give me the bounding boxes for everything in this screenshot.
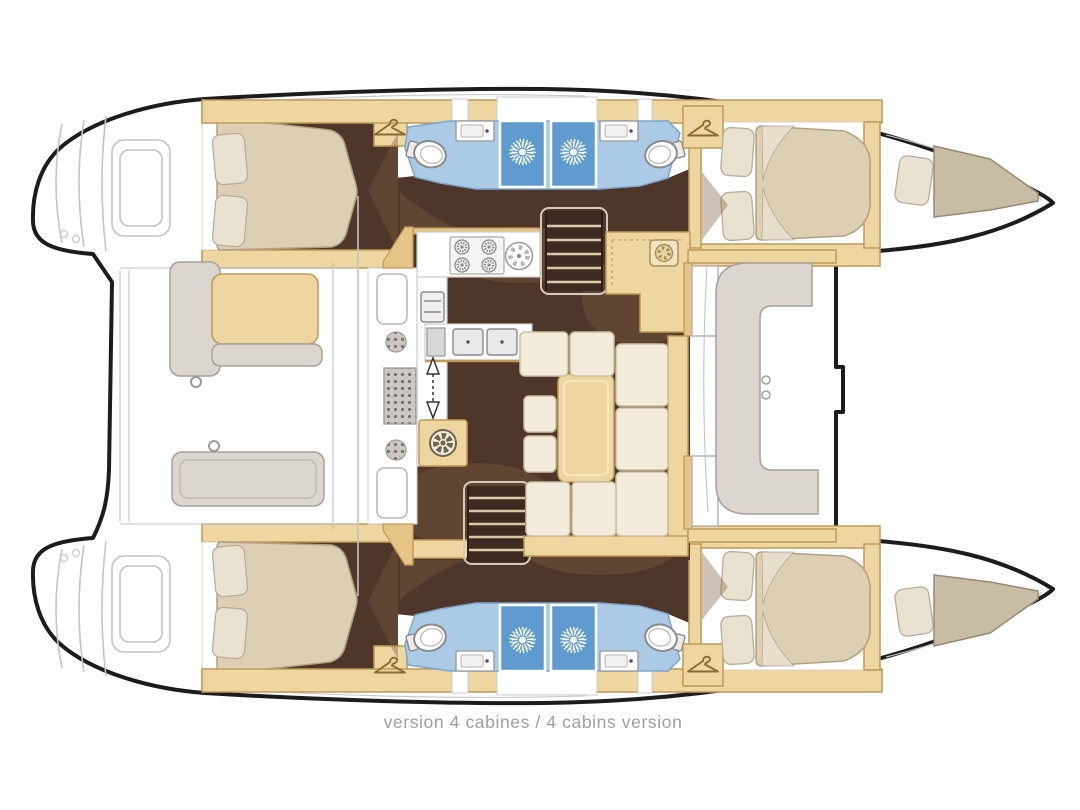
companionway-mat bbox=[384, 368, 416, 424]
stairs-port-hull bbox=[541, 208, 607, 294]
salon-window bbox=[377, 274, 407, 324]
drainer bbox=[427, 328, 445, 356]
cockpit-settee-cushion bbox=[212, 274, 318, 344]
cup-holder bbox=[762, 391, 770, 399]
cleat-ring bbox=[209, 441, 219, 451]
salon-window bbox=[377, 468, 407, 518]
salon bbox=[368, 208, 698, 575]
stool bbox=[386, 440, 406, 460]
oven bbox=[421, 292, 444, 322]
cleat-ring bbox=[191, 377, 201, 387]
stool bbox=[386, 332, 406, 352]
salon-sofa bbox=[520, 332, 688, 556]
caption: version 4 cabines / 4 cabins version bbox=[384, 712, 683, 732]
cup-holder bbox=[762, 376, 770, 384]
floorplan-drawing: version 4 cabines / 4 cabins version bbox=[0, 0, 1080, 810]
catamaran-floorplan-canvas: version 4 cabines / 4 cabins version bbox=[0, 0, 1080, 810]
stairs-starboard-hull bbox=[464, 482, 530, 564]
salon-table bbox=[558, 374, 614, 482]
salon-side-band bbox=[368, 227, 417, 565]
